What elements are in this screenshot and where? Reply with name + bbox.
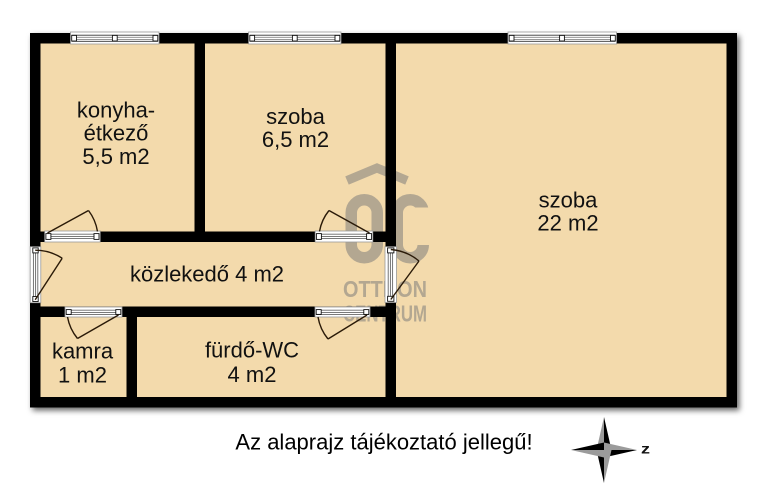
svg-text:konyha-: konyha-	[77, 98, 155, 123]
svg-text:szoba: szoba	[539, 187, 598, 212]
svg-text:4 m2: 4 m2	[228, 362, 277, 387]
svg-text:Az alaprajz tájékoztató jelleg: Az alaprajz tájékoztató jellegű!	[235, 430, 532, 455]
svg-text:közlekedő 4 m2: közlekedő 4 m2	[130, 261, 284, 286]
svg-text:kamra: kamra	[52, 338, 114, 363]
svg-text:5,5 m2: 5,5 m2	[82, 144, 149, 169]
svg-text:fürdő-WC: fürdő-WC	[205, 338, 299, 363]
svg-text:szoba: szoba	[266, 104, 325, 129]
svg-text:6,5 m2: 6,5 m2	[262, 127, 329, 152]
svg-text:z: z	[641, 441, 650, 456]
svg-text:22 m2: 22 m2	[537, 210, 598, 235]
svg-text:étkező: étkező	[84, 121, 149, 146]
svg-text:1 m2: 1 m2	[58, 362, 107, 387]
